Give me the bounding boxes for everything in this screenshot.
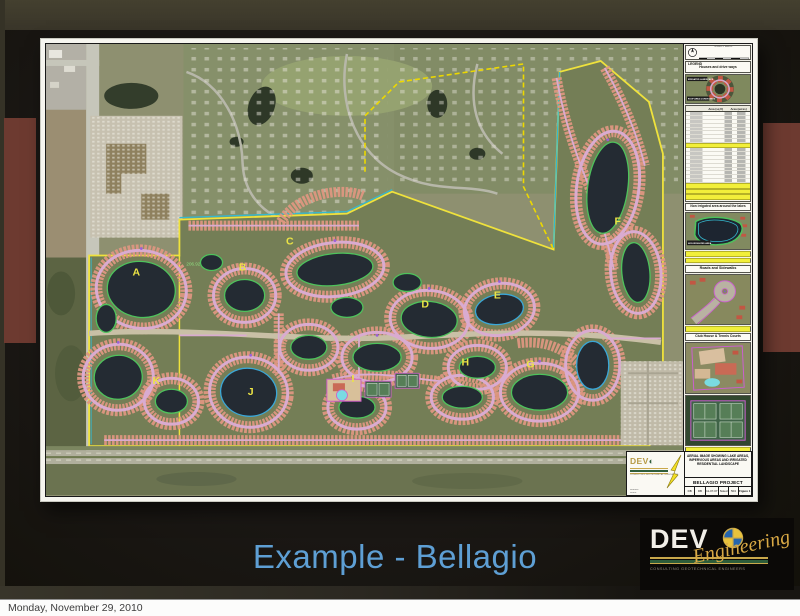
aerial-map: A B C D E F G H I J K 206.92 bbox=[46, 44, 685, 495]
lakes-total-row bbox=[685, 251, 751, 257]
title-block-logo-cell: DEV◐ CONSULTING GEOTECHNICAL ENGINEERS ▪… bbox=[627, 452, 685, 495]
parcel-label-d: D bbox=[421, 298, 429, 310]
southeast-subdivision bbox=[621, 361, 685, 445]
title-block-fields: DB DB 11-07-07 Noted 504 Figure 1 bbox=[685, 487, 751, 495]
parcel-label-e: E bbox=[494, 289, 501, 301]
parcel-label-g: G bbox=[526, 358, 534, 370]
clubhouse-thumbnail bbox=[685, 342, 751, 394]
field-date: 11-07-07 bbox=[706, 487, 719, 495]
sheet-title-block: DEV◐ CONSULTING GEOTECHNICAL ENGINEERS ▪… bbox=[626, 451, 752, 496]
parcel-label-a: A bbox=[132, 267, 140, 279]
slide-maroon-band-right bbox=[763, 123, 800, 352]
lake-thumbnail: NON IRRIGATED AREA bbox=[685, 212, 751, 250]
scale-bar bbox=[699, 57, 749, 60]
legend-subtitle: Houses and drive ways bbox=[686, 66, 750, 70]
lightning-bolt-icon bbox=[665, 454, 683, 490]
roads-thumbnail bbox=[685, 274, 751, 325]
legend-header: LEGEND Houses and drive ways bbox=[685, 61, 751, 73]
devo-logo: DEV CONSULTING GEOTECHNICAL ENGINEERS En… bbox=[640, 518, 794, 590]
field-checked: DB bbox=[695, 487, 705, 495]
section-header-club: Club House & Tennis Courts bbox=[685, 333, 751, 341]
table-summary-row bbox=[686, 194, 750, 200]
status-bar: Monday, November 29, 2010 bbox=[0, 599, 800, 616]
roads-total-row bbox=[685, 326, 751, 332]
devo-stripes-small bbox=[630, 468, 668, 474]
houses-thumbnail: IRRIGATED LANDSCAPE ROOF AREA & DRIVE WA… bbox=[685, 74, 751, 104]
parcel-label-b: B bbox=[239, 262, 247, 274]
drawing-description: AERIAL IMAGE SHOWING LAKE AREAS, IMPERVI… bbox=[685, 452, 751, 478]
parcel-label-j: J bbox=[248, 386, 254, 398]
highway bbox=[46, 446, 685, 495]
title-block-text-cell: AERIAL IMAGE SHOWING LAKE AREAS, IMPERVI… bbox=[685, 452, 751, 495]
presentation-window: A B C D E F G H I J K 206.92 bbox=[0, 0, 800, 616]
tennis-thumbnail bbox=[685, 395, 751, 446]
parcel-label-c: C bbox=[286, 236, 294, 248]
plan-sheet-frame: A B C D E F G H I J K 206.92 bbox=[45, 43, 753, 497]
section-header-roads: Roads and Sidewalks bbox=[685, 265, 751, 273]
area-table: Area (sq ft) Area (acres) bbox=[685, 105, 751, 202]
field-figure: Figure 1 bbox=[739, 487, 751, 495]
north-arrow-icon bbox=[687, 47, 698, 58]
slide-top-band bbox=[0, 0, 800, 30]
status-bar-date: Monday, November 29, 2010 bbox=[0, 600, 800, 616]
field-job: 504 bbox=[729, 487, 738, 495]
parcel-label-h: H bbox=[462, 356, 470, 368]
col-header-sqft: Area (sq ft) bbox=[704, 106, 727, 111]
houses-thumb-label-bottom: ROOF AREA & DRIVE WAYS bbox=[688, 98, 716, 101]
section-header-lakes: Non irrigated area around the lakes bbox=[685, 203, 751, 211]
survey-annotation: 206.92 bbox=[186, 262, 200, 267]
field-drawn: DB bbox=[685, 487, 695, 495]
project-name: BELLAGIO PROJECT bbox=[685, 478, 751, 487]
devo-address-lines: ▪▪▪▪▪▪▪▪▪▪▪▪▪▪▪▪▪▪▪▪▪ bbox=[630, 489, 639, 494]
parcel-label-i: I bbox=[351, 373, 354, 385]
lake-thumb-label: NON IRRIGATED AREA bbox=[688, 242, 712, 245]
field-scale: Noted bbox=[719, 487, 729, 495]
plan-sheet: A B C D E F G H I J K 206.92 bbox=[40, 38, 758, 502]
slide-maroon-band-left bbox=[4, 118, 36, 343]
graphic-scale-box: GRAPHIC SCALE 1 inch = 300 ft. bbox=[685, 45, 751, 60]
graphic-scale-subtitle: 1 inch = 300 ft. bbox=[698, 45, 749, 48]
parcel-label-k: K bbox=[153, 375, 161, 387]
col-header-acres: Area (acres) bbox=[727, 106, 750, 111]
houses-thumb-label-top: IRRIGATED LANDSCAPE bbox=[688, 78, 714, 81]
legend-sidebar: GRAPHIC SCALE 1 inch = 300 ft. LEGEND Ho… bbox=[683, 44, 752, 496]
lakes-total-row bbox=[685, 258, 751, 264]
parcel-label-f: F bbox=[615, 216, 622, 228]
devo-wordmark-small: DEV◐ bbox=[630, 456, 654, 466]
